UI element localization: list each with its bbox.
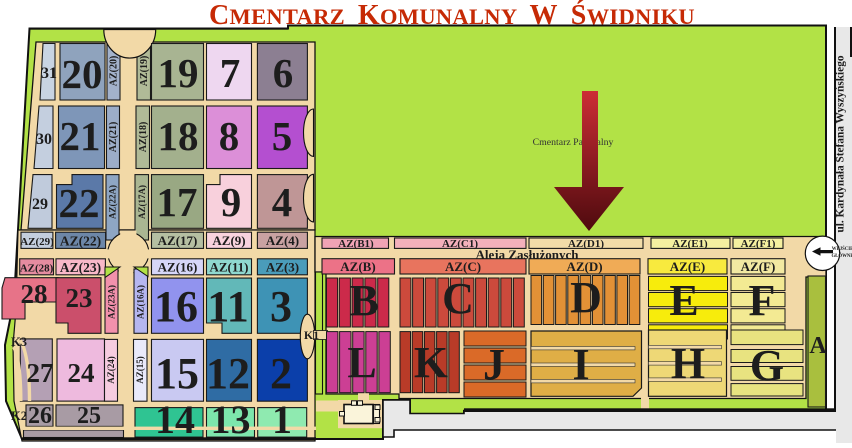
svg-text:16: 16 [154,282,198,331]
svg-text:31: 31 [41,65,57,82]
svg-text:2: 2 [270,349,292,398]
svg-text:L: L [347,338,376,387]
svg-text:AZ(24): AZ(24) [106,356,116,384]
svg-text:13: 13 [211,397,251,442]
svg-text:AZ(23A): AZ(23A) [107,285,117,319]
svg-text:1: 1 [272,397,292,442]
svg-text:J: J [483,340,505,389]
svg-text:7: 7 [220,50,241,96]
svg-text:19: 19 [158,50,199,96]
svg-text:AZ(20): AZ(20) [109,56,120,87]
svg-text:AZ(B): AZ(B) [340,259,375,274]
svg-text:AZ(9): AZ(9) [212,233,245,248]
svg-text:AZ(3): AZ(3) [266,260,299,275]
svg-text:H: H [671,339,705,388]
svg-text:AZ(C): AZ(C) [445,259,481,274]
svg-text:28: 28 [21,279,48,309]
svg-text:AZ(15): AZ(15) [135,356,145,384]
svg-text:12: 12 [206,349,250,398]
svg-text:AZ(22): AZ(22) [60,234,101,249]
svg-text:26: 26 [28,403,52,429]
svg-text:I: I [572,340,589,389]
svg-text:AZ(28): AZ(28) [20,263,54,275]
svg-text:WEJŚCIE: WEJŚCIE [832,246,852,252]
svg-text:6: 6 [273,50,294,96]
svg-text:AZ(F): AZ(F) [741,259,776,274]
svg-text:B: B [349,276,378,325]
svg-text:AZ(B1): AZ(B1) [338,238,374,250]
svg-text:AZ(16): AZ(16) [158,260,198,275]
svg-text:AZ(18): AZ(18) [138,122,149,153]
svg-text:4: 4 [272,179,293,225]
svg-text:25: 25 [77,403,101,429]
svg-text:K2: K2 [11,409,27,423]
svg-text:G: G [750,341,784,390]
svg-text:AZ(E1): AZ(E1) [672,238,708,250]
svg-text:GŁÓWNE: GŁÓWNE [831,253,852,259]
svg-text:8: 8 [219,113,240,159]
svg-text:K3: K3 [11,335,27,349]
svg-text:27: 27 [27,358,54,388]
svg-text:5: 5 [272,113,293,159]
svg-text:9: 9 [221,179,242,225]
svg-text:K: K [414,338,448,387]
svg-text:30: 30 [36,131,52,148]
svg-text:20: 20 [62,51,103,97]
svg-text:29: 29 [32,196,48,213]
svg-text:23: 23 [66,283,93,313]
svg-text:AZ(17): AZ(17) [158,233,198,248]
svg-text:E: E [669,276,698,325]
svg-text:AZ(23): AZ(23) [60,260,101,275]
svg-text:AZ(4): AZ(4) [266,233,299,248]
svg-text:AZ(E): AZ(E) [670,259,705,274]
svg-text:D: D [570,273,602,322]
svg-text:AZ(29): AZ(29) [20,236,54,248]
svg-text:Cmentarz Parafialny: Cmentarz Parafialny [533,137,614,148]
svg-text:A: A [809,333,827,359]
svg-text:15: 15 [155,349,199,398]
svg-text:3: 3 [270,282,292,331]
svg-text:ul. Kardynała Stefana Wyszyńsk: ul. Kardynała Stefana Wyszyńskiego [835,55,847,232]
svg-text:AZ(F1): AZ(F1) [741,238,776,250]
svg-text:AZ(D): AZ(D) [566,259,602,274]
svg-text:24: 24 [68,358,95,388]
svg-text:21: 21 [60,113,101,159]
svg-text:C: C [442,274,474,323]
svg-text:AZ(22A): AZ(22A) [108,185,118,219]
svg-text:F: F [749,276,776,325]
svg-text:CMENTARZ KOMUNALNY W ŚWIDNIKU: CMENTARZ KOMUNALNY W ŚWIDNIKU [209,0,695,31]
svg-text:AZ(C1): AZ(C1) [442,238,478,250]
svg-text:AZ(19): AZ(19) [139,56,150,87]
svg-text:AZ(16A): AZ(16A) [136,285,146,319]
svg-text:AZ(11): AZ(11) [210,260,249,275]
svg-text:AZ(17A): AZ(17A) [137,185,147,219]
svg-text:17: 17 [157,179,198,225]
svg-text:11: 11 [207,282,249,331]
svg-text:18: 18 [158,113,199,159]
svg-text:22: 22 [59,180,100,226]
svg-text:K1: K1 [304,328,319,342]
svg-text:14: 14 [155,397,195,442]
svg-text:AZ(21): AZ(21) [108,122,119,153]
